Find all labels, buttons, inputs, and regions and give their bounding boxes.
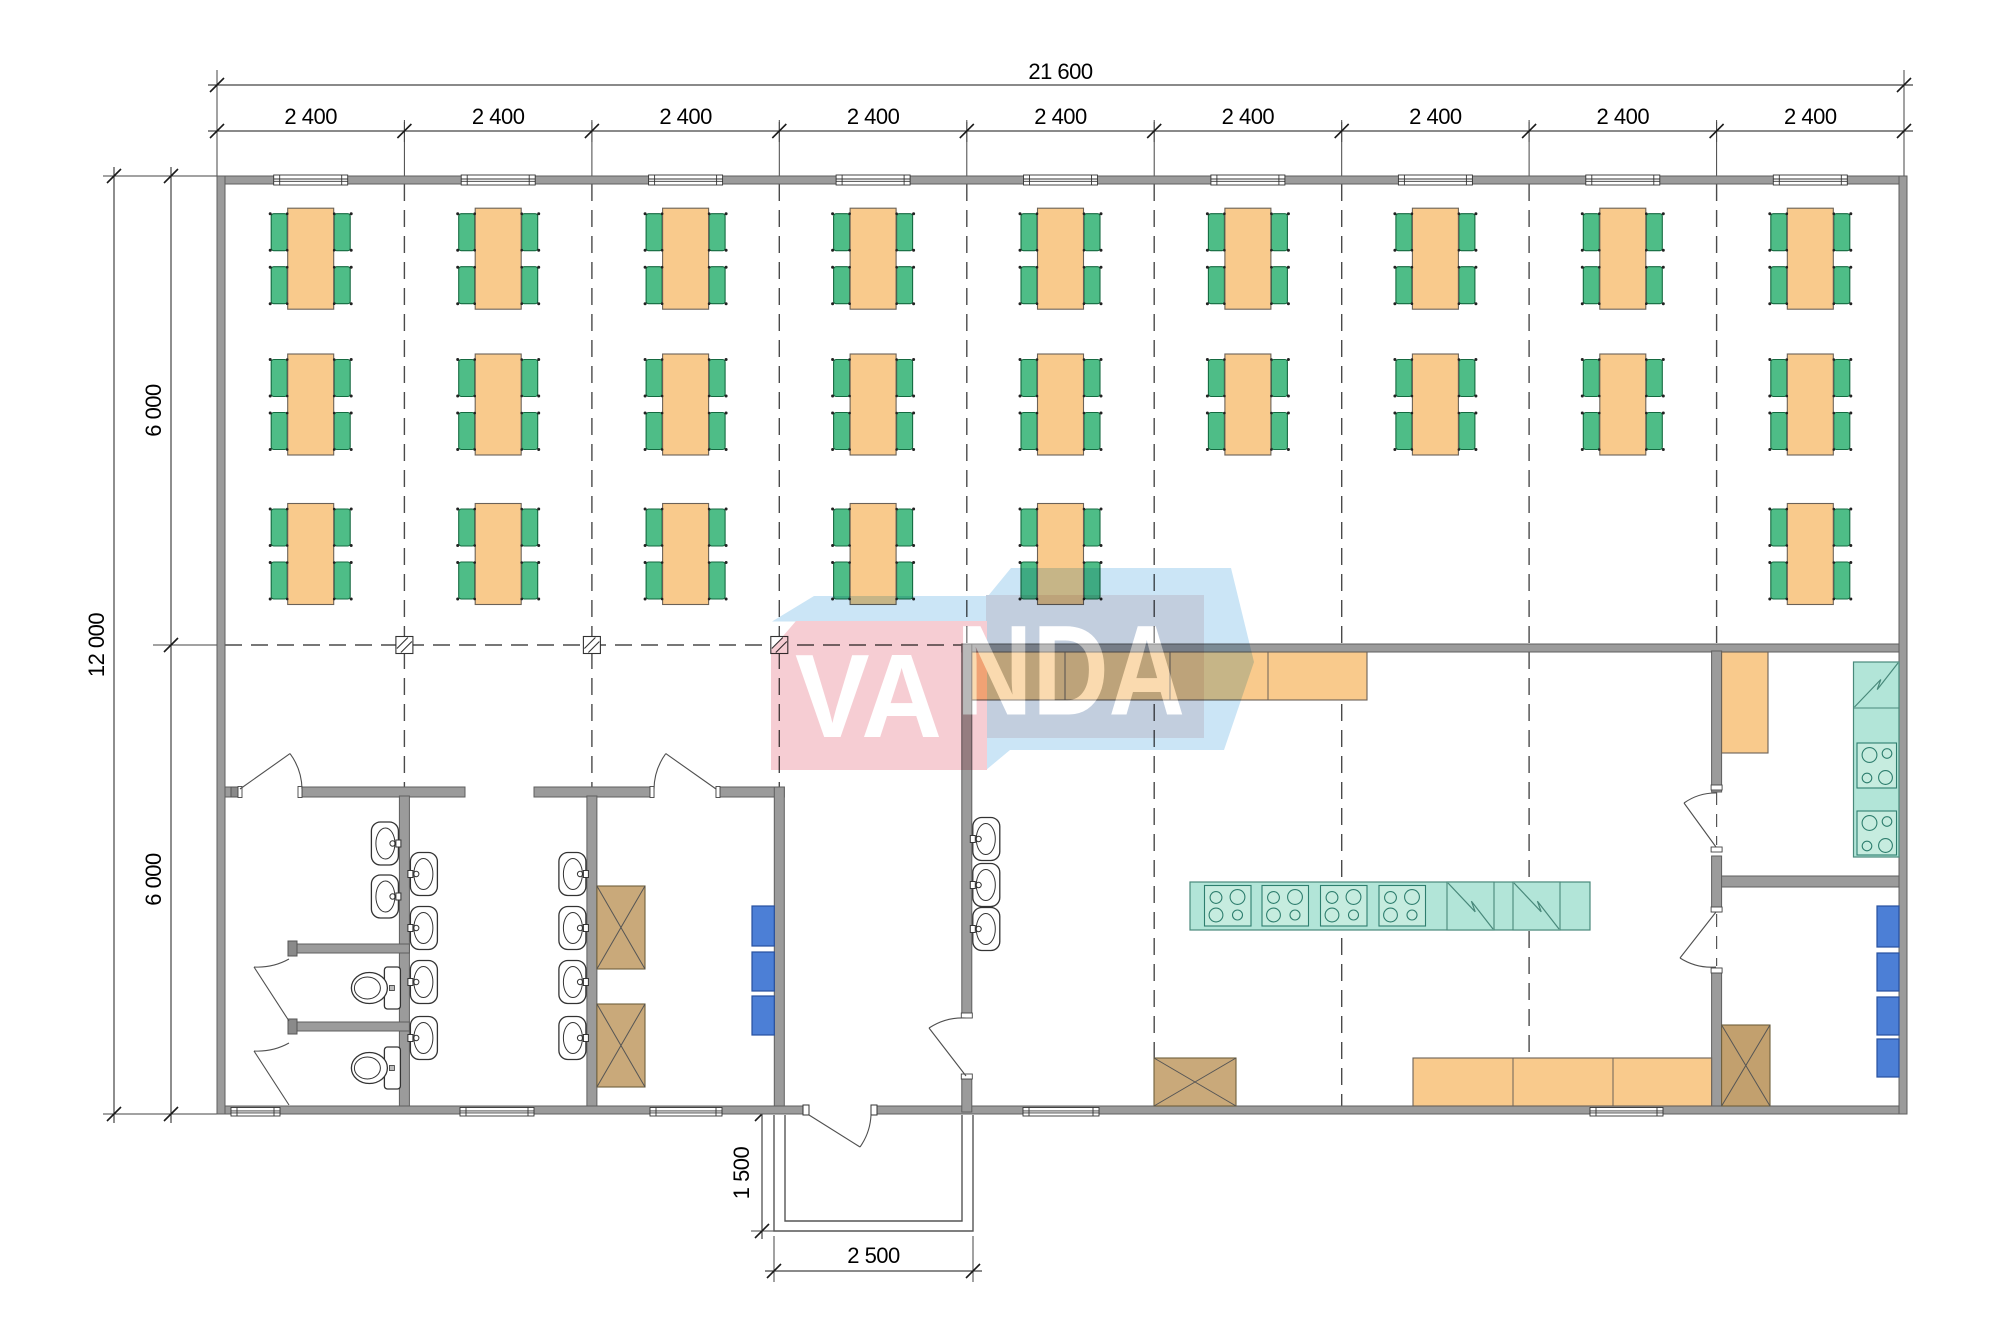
svg-text:2 400: 2 400 (659, 104, 712, 129)
svg-text:12 000: 12 000 (84, 613, 109, 678)
svg-text:2 500: 2 500 (847, 1243, 900, 1268)
svg-text:2 400: 2 400 (1784, 104, 1837, 129)
svg-text:6 000: 6 000 (141, 384, 166, 437)
svg-text:VA: VA (795, 630, 942, 763)
svg-text:21 600: 21 600 (1028, 59, 1093, 84)
svg-text:6 000: 6 000 (141, 853, 166, 906)
svg-text:2 400: 2 400 (1409, 104, 1462, 129)
svg-text:2 400: 2 400 (1034, 104, 1087, 129)
svg-text:2 400: 2 400 (1597, 104, 1650, 129)
svg-text:2 400: 2 400 (472, 104, 525, 129)
svg-text:NDA: NDA (956, 600, 1185, 743)
svg-text:2 400: 2 400 (847, 104, 900, 129)
svg-text:1 500: 1 500 (729, 1146, 754, 1199)
svg-text:2 400: 2 400 (284, 104, 337, 129)
svg-text:2 400: 2 400 (1222, 104, 1275, 129)
